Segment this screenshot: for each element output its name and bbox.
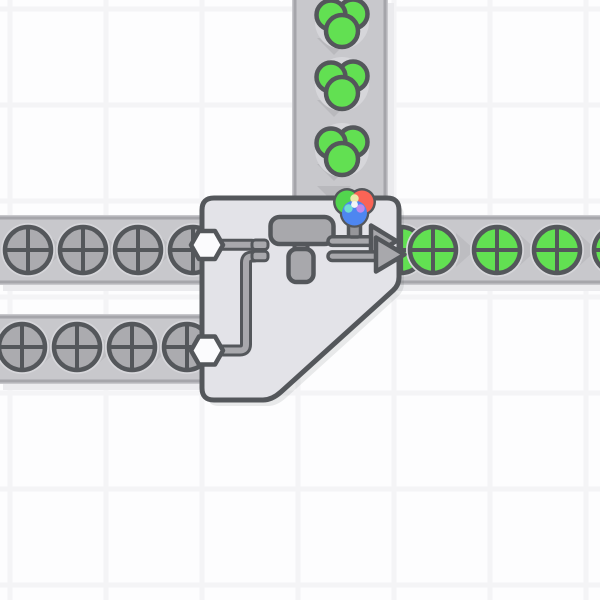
- grid-line-vertical: [104, 0, 109, 600]
- belt-border: [0, 316, 206, 319]
- item-circle-green: [530, 223, 584, 277]
- belt-border: [394, 281, 600, 284]
- item-circle-uncolored: [56, 223, 110, 277]
- belt-shadow: [397, 285, 600, 291]
- grid-line-horizontal: [0, 487, 600, 492]
- belt-shadow: [3, 384, 209, 390]
- color-blob: [326, 143, 358, 175]
- item-color-green: [315, 57, 369, 111]
- color-indicator-white-mix: [351, 201, 358, 208]
- input-port-hexagon-upper: [191, 231, 223, 259]
- belt-border: [394, 217, 600, 220]
- output-arrow-front-shaft: [328, 252, 381, 261]
- belt-border: [294, 0, 297, 206]
- game-viewport[interactable]: [0, 0, 600, 600]
- grid-line-vertical: [8, 0, 13, 600]
- item-circle-uncolored: [50, 320, 104, 374]
- item-circle-uncolored: [1, 223, 55, 277]
- item-color-green: [315, 123, 369, 177]
- game-canvas[interactable]: [0, 0, 600, 600]
- item-circle-uncolored: [111, 223, 165, 277]
- belt-shadow: [388, 3, 394, 209]
- color-blob: [326, 77, 358, 109]
- grid-line-horizontal: [0, 391, 600, 396]
- paint-roller-body: [271, 217, 334, 244]
- item-circle-green: [406, 223, 460, 277]
- item-circle-uncolored: [105, 320, 159, 374]
- grid-line-horizontal: [0, 583, 600, 588]
- input-port-hexagon-lower: [191, 337, 223, 365]
- belt-shadow: [3, 285, 209, 291]
- belt-border: [384, 0, 387, 206]
- grid-line-vertical: [488, 0, 493, 600]
- item-circle-green: [470, 223, 524, 277]
- paint-roller-handle: [289, 249, 314, 282]
- pipe-flange-lower: [252, 251, 268, 260]
- belt-border: [0, 281, 206, 284]
- grid-line-vertical: [584, 0, 589, 600]
- pipe-flange-upper: [252, 240, 268, 250]
- belt-border: [0, 380, 206, 383]
- belt-border: [0, 217, 206, 220]
- color-blob: [326, 15, 358, 47]
